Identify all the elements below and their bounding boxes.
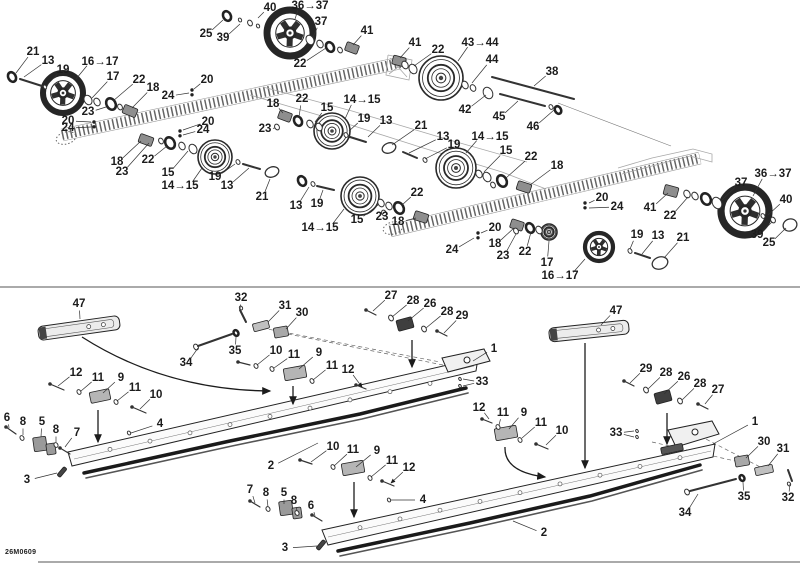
leader-line xyxy=(373,300,385,311)
leader-line xyxy=(501,228,514,240)
rail-window xyxy=(438,508,442,512)
slide-rail xyxy=(322,444,715,545)
callout-9: 9 xyxy=(374,445,380,457)
callout-9: 9 xyxy=(316,347,322,359)
callout-18: 18 xyxy=(147,82,160,94)
leader-line xyxy=(463,383,474,386)
leader-line xyxy=(522,427,535,438)
callout-19: 19 xyxy=(311,198,324,210)
shaft-rod xyxy=(317,186,334,190)
callout-22: 22 xyxy=(525,151,538,163)
callout-26: 26 xyxy=(424,298,437,310)
callout-28: 28 xyxy=(407,295,420,307)
callout-43→44: 43→44 xyxy=(461,37,499,49)
wear-runner xyxy=(84,388,466,473)
mount-block xyxy=(89,389,111,404)
leader-line xyxy=(311,451,326,462)
rail-window xyxy=(558,482,562,486)
callout-34: 34 xyxy=(180,357,193,369)
mounting-arrow xyxy=(82,337,270,391)
bolt-shank xyxy=(60,448,70,454)
callout-8: 8 xyxy=(53,424,60,436)
leader-line xyxy=(746,446,758,458)
callout-11: 11 xyxy=(347,444,360,456)
callout-10: 10 xyxy=(327,441,340,453)
leader-line xyxy=(444,320,456,333)
callout-22: 22 xyxy=(432,44,445,56)
callout-3: 3 xyxy=(282,542,288,554)
ring-idler-wheel xyxy=(341,177,379,215)
mounting-arrow xyxy=(505,447,545,477)
callout-11: 11 xyxy=(497,407,510,419)
callout-18: 18 xyxy=(267,98,280,110)
washer-ring xyxy=(158,137,165,144)
shaft-rod xyxy=(240,310,246,322)
washer-ring xyxy=(458,384,462,388)
washer-ring xyxy=(407,63,418,75)
callout-5: 5 xyxy=(281,487,288,499)
callout-21: 21 xyxy=(415,120,428,132)
callout-45: 45 xyxy=(493,111,506,123)
callout-3: 3 xyxy=(24,474,30,486)
nut xyxy=(583,206,586,209)
ring-idler-wheel xyxy=(436,148,476,188)
washer-ring xyxy=(324,41,335,53)
callout-20: 20 xyxy=(596,192,609,204)
callout-35: 35 xyxy=(229,345,242,357)
callout-42: 42 xyxy=(459,104,472,116)
leader-line xyxy=(409,140,436,153)
leader-line xyxy=(676,197,688,211)
nut xyxy=(476,231,479,234)
callout-15: 15 xyxy=(500,145,513,157)
mount-block xyxy=(344,42,359,55)
leader-line xyxy=(656,193,668,204)
shaft-rod xyxy=(403,152,417,158)
callout-15: 15 xyxy=(321,102,334,114)
leader-line xyxy=(459,238,474,247)
callout-19: 19 xyxy=(358,113,371,125)
washer-ring xyxy=(310,181,316,187)
rail-window xyxy=(678,456,682,460)
callout-14→15: 14→15 xyxy=(343,94,381,106)
washer-ring xyxy=(76,389,82,395)
leader-line xyxy=(682,388,694,400)
washer-ring xyxy=(315,39,324,49)
shaft-rod xyxy=(350,137,366,142)
callout-24: 24 xyxy=(162,90,175,102)
bracket-hole xyxy=(464,357,470,363)
nut xyxy=(92,120,95,123)
leader-line xyxy=(113,84,133,101)
mount-block xyxy=(33,436,48,452)
callout-34: 34 xyxy=(679,507,692,519)
callout-41: 41 xyxy=(409,37,422,49)
washer-ring xyxy=(421,325,428,332)
callout-29: 29 xyxy=(640,363,653,375)
leader-line xyxy=(96,107,106,110)
callout-22: 22 xyxy=(664,210,677,222)
leader-line xyxy=(513,521,537,531)
hub-center xyxy=(743,209,746,212)
washer-ring xyxy=(388,314,395,321)
hub-center xyxy=(213,155,216,158)
mount-block xyxy=(57,467,67,478)
callout-37: 37 xyxy=(315,16,328,28)
leader-line xyxy=(233,168,249,182)
bolt-shank xyxy=(482,419,492,423)
washer-ring xyxy=(187,143,198,155)
bolt-shank xyxy=(624,381,634,386)
washer-ring xyxy=(238,18,243,23)
leader-line xyxy=(463,379,474,381)
callout-39: 39 xyxy=(217,32,230,44)
callout-13: 13 xyxy=(221,180,234,192)
leader-line xyxy=(173,151,188,168)
leader-line xyxy=(314,512,315,516)
ring-idler-wheel xyxy=(541,224,557,240)
callout-29: 29 xyxy=(456,310,469,322)
mount-block xyxy=(283,365,307,381)
plate-hole xyxy=(611,326,615,330)
callout-24: 24 xyxy=(197,124,210,136)
washer-ring xyxy=(481,171,492,183)
callout-14→15: 14→15 xyxy=(301,222,339,234)
rail-window xyxy=(228,423,232,427)
leader-line xyxy=(278,443,318,463)
callout-2: 2 xyxy=(268,460,274,472)
leader-line xyxy=(212,20,223,30)
callout-9: 9 xyxy=(521,407,527,419)
shaft-rod xyxy=(788,470,792,481)
leader-line xyxy=(648,377,660,389)
bolt-shank xyxy=(698,404,708,409)
washer-ring xyxy=(458,377,462,381)
nut xyxy=(178,129,181,132)
leader-line xyxy=(286,318,296,329)
callout-19: 19 xyxy=(448,139,461,151)
callout-1: 1 xyxy=(491,343,498,355)
callout-28: 28 xyxy=(441,306,454,318)
washer-ring xyxy=(787,482,792,487)
callout-22: 22 xyxy=(294,58,307,70)
washer-ring xyxy=(469,84,477,93)
callout-33: 33 xyxy=(610,427,623,439)
washer-ring xyxy=(269,366,275,372)
bolt-shank xyxy=(366,310,376,315)
washer-ring xyxy=(682,189,691,199)
leader-line xyxy=(664,243,677,258)
washer-ring xyxy=(127,431,132,436)
leader-line xyxy=(426,316,441,328)
leader-line xyxy=(293,546,317,548)
leader-line xyxy=(267,499,268,507)
hub-center xyxy=(548,231,550,233)
leader-line xyxy=(265,179,270,191)
leader-line xyxy=(176,93,189,95)
ring-idler-wheel xyxy=(198,140,232,174)
leader-line xyxy=(775,228,786,239)
leader-line xyxy=(58,377,70,386)
callout-24: 24 xyxy=(611,201,624,213)
callout-15: 15 xyxy=(351,214,364,226)
bolt-shank xyxy=(238,362,250,365)
leader-line xyxy=(408,308,424,321)
mount-block xyxy=(654,390,672,405)
leader-line xyxy=(507,234,516,250)
callout-24: 24 xyxy=(62,122,75,134)
nut xyxy=(583,201,586,204)
hub-center xyxy=(358,194,362,198)
callout-35: 35 xyxy=(738,491,751,503)
washer-ring xyxy=(305,119,314,129)
leader-line xyxy=(484,155,500,172)
washer-ring xyxy=(490,181,497,188)
callout-13: 13 xyxy=(652,230,665,242)
callout-36→37: 36→37 xyxy=(754,168,791,180)
washer-ring xyxy=(177,141,186,151)
callout-9: 9 xyxy=(118,372,124,384)
callout-44: 44 xyxy=(486,54,499,66)
leader-line xyxy=(505,101,518,113)
callout-32: 32 xyxy=(782,492,795,504)
callout-8: 8 xyxy=(263,487,270,499)
mount-block xyxy=(754,464,773,476)
washer-ring xyxy=(247,19,254,26)
leader-line xyxy=(589,207,609,208)
washer-ring xyxy=(481,86,495,101)
callout-32: 32 xyxy=(235,292,248,304)
callout-37: 37 xyxy=(735,177,748,189)
exploded-parts-diagram-page: 21131916→171722182320242024202425394036→… xyxy=(0,0,800,563)
callout-8: 8 xyxy=(20,416,27,428)
callout-31: 31 xyxy=(279,300,292,312)
callout-47: 47 xyxy=(73,298,86,310)
wear-runner xyxy=(338,465,700,551)
hub-center xyxy=(439,76,443,80)
callout-30: 30 xyxy=(758,436,771,448)
leader-line xyxy=(154,146,167,156)
bolt-shank xyxy=(132,407,146,413)
bracket-hole xyxy=(692,429,698,435)
leader-line xyxy=(320,190,323,198)
leader-line xyxy=(630,373,640,383)
callout-40: 40 xyxy=(780,194,793,206)
leader-line xyxy=(24,65,41,77)
leader-line xyxy=(548,241,549,257)
washer-ring xyxy=(495,174,509,189)
exploded-parts-diagram: 21131916→171722182320242024202425394036→… xyxy=(0,0,800,563)
stopper-plate xyxy=(548,320,629,342)
drawing-code: 26M0609 xyxy=(5,549,36,556)
washer-ring xyxy=(739,474,746,481)
callout-11: 11 xyxy=(326,360,339,372)
shaft-rod xyxy=(20,79,42,86)
callout-12: 12 xyxy=(342,364,355,376)
callout-18: 18 xyxy=(489,238,502,250)
leader-line xyxy=(268,310,279,322)
leader-line xyxy=(183,132,195,135)
leader-line xyxy=(257,355,270,365)
leader-line xyxy=(76,121,91,122)
leader-line xyxy=(630,241,633,249)
callout-17: 17 xyxy=(541,257,554,269)
track-beam-edge xyxy=(389,152,699,225)
leader-line xyxy=(499,419,500,425)
callout-33: 33 xyxy=(476,376,489,388)
shaft-rod xyxy=(500,94,545,106)
leader-line xyxy=(472,95,486,106)
callout-27: 27 xyxy=(385,290,398,302)
leader-line xyxy=(253,496,255,503)
callout-23: 23 xyxy=(259,123,272,135)
leader-line xyxy=(65,438,72,447)
rail-window xyxy=(188,431,192,435)
callout-18: 18 xyxy=(551,160,564,172)
spoked-idler-wheel xyxy=(267,10,313,56)
leader-line xyxy=(117,392,129,401)
callout-22: 22 xyxy=(411,187,424,199)
washer-ring xyxy=(296,175,307,187)
leader-line xyxy=(690,494,698,508)
leader-line xyxy=(530,170,550,185)
callout-4: 4 xyxy=(157,418,164,430)
leader-line xyxy=(274,359,287,368)
leader-line xyxy=(131,426,152,433)
callout-10: 10 xyxy=(556,425,569,437)
washer-ring xyxy=(233,329,240,336)
nut xyxy=(476,236,479,239)
nut xyxy=(190,88,193,91)
callout-25: 25 xyxy=(200,28,213,40)
leader-line xyxy=(371,465,386,477)
leader-line xyxy=(392,130,414,145)
callout-22: 22 xyxy=(296,93,309,105)
leader-line xyxy=(402,197,411,205)
end-cap xyxy=(650,255,669,272)
spoked-idler-wheel xyxy=(585,233,613,261)
callout-47: 47 xyxy=(610,305,623,317)
callout-1: 1 xyxy=(752,416,759,428)
plate-end xyxy=(550,328,558,341)
leader-line xyxy=(140,399,150,409)
washer-ring xyxy=(235,159,241,165)
rail-window xyxy=(478,499,482,503)
callout-28: 28 xyxy=(694,378,707,390)
washer-ring xyxy=(19,435,25,441)
mount-block xyxy=(273,326,289,338)
leader-line xyxy=(534,76,546,86)
callout-6: 6 xyxy=(308,500,314,512)
callout-14→15: 14→15 xyxy=(161,180,199,192)
leader-line xyxy=(458,47,468,61)
hub-center xyxy=(598,246,600,248)
callout-14→15: 14→15 xyxy=(471,131,509,143)
leader-line xyxy=(506,161,525,178)
bolt-shank xyxy=(50,384,64,390)
callout-11: 11 xyxy=(535,417,548,429)
leader-line xyxy=(539,110,554,123)
callout-6: 6 xyxy=(4,412,10,424)
bolt-shank xyxy=(312,515,322,521)
callout-41: 41 xyxy=(361,25,374,37)
leader-line xyxy=(81,382,92,391)
rail-window xyxy=(348,398,352,402)
plate-body xyxy=(548,320,629,342)
hub-center xyxy=(330,129,334,133)
callout-23: 23 xyxy=(376,211,389,223)
callout-7: 7 xyxy=(74,427,80,439)
rail-window xyxy=(638,464,642,468)
leader-line xyxy=(132,92,147,108)
leader-line xyxy=(299,357,313,369)
bolt-shank xyxy=(6,427,16,434)
callout-19: 19 xyxy=(209,171,222,183)
leader-line xyxy=(16,57,28,73)
nut xyxy=(190,93,193,96)
callout-16→17: 16→17 xyxy=(81,56,118,68)
callout-22: 22 xyxy=(519,246,532,258)
hub-center xyxy=(62,92,65,95)
washer-ring xyxy=(690,191,699,201)
leader-line xyxy=(353,36,361,45)
callout-40: 40 xyxy=(264,2,277,14)
callout-38: 38 xyxy=(546,66,559,78)
callout-12: 12 xyxy=(473,402,486,414)
leader-line xyxy=(472,65,487,83)
washer-ring xyxy=(635,429,639,433)
washer-ring xyxy=(643,386,650,393)
callout-13: 13 xyxy=(380,115,393,127)
washer-ring xyxy=(256,24,261,29)
callout-19: 19 xyxy=(57,64,70,76)
leader-line xyxy=(301,187,309,201)
rail-window xyxy=(428,381,432,385)
callout-26: 26 xyxy=(678,371,691,383)
end-cap xyxy=(264,165,281,179)
rail-window xyxy=(268,414,272,418)
callout-4: 4 xyxy=(420,494,427,506)
callout-41: 41 xyxy=(644,202,657,214)
washer-ring xyxy=(524,222,535,234)
callout-2: 2 xyxy=(541,527,547,539)
washer-ring xyxy=(163,136,177,151)
callout-10: 10 xyxy=(270,345,283,357)
callout-11: 11 xyxy=(129,382,142,394)
rail-window xyxy=(398,517,402,521)
washer-ring xyxy=(384,201,393,211)
end-cap xyxy=(781,217,798,233)
callout-30: 30 xyxy=(296,307,309,319)
mount-block xyxy=(316,540,326,551)
callout-11: 11 xyxy=(386,455,399,467)
leader-line xyxy=(624,434,634,437)
slide-rail xyxy=(68,358,478,466)
washer-ring xyxy=(387,498,392,503)
callout-25: 25 xyxy=(763,237,776,249)
callout-13: 13 xyxy=(42,55,55,67)
callout-39: 39 xyxy=(751,229,764,241)
assembly-dash-line xyxy=(288,334,458,368)
callout-18: 18 xyxy=(111,156,124,168)
washer-ring xyxy=(193,343,200,350)
callout-17: 17 xyxy=(107,71,120,83)
callout-18: 18 xyxy=(392,216,405,228)
callout-27: 27 xyxy=(712,384,725,396)
mount-block xyxy=(252,320,270,332)
leader-line xyxy=(527,232,531,246)
washer-ring xyxy=(699,192,713,207)
